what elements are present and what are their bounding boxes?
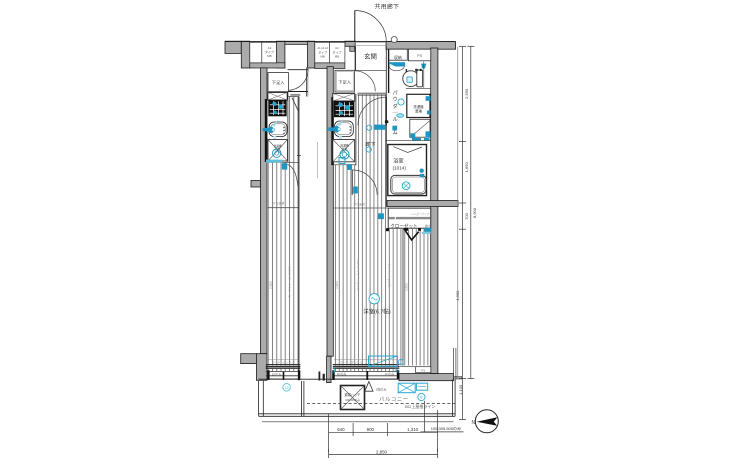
svg-text:2,600: 2,600 (269, 281, 273, 289)
svg-text:15: 15 (285, 386, 289, 390)
svg-text:バルコニー: バルコニー (379, 396, 409, 403)
svg-text:下り天井: 下り天井 (353, 202, 365, 207)
svg-text:502上屋根ライン: 502上屋根ライン (405, 403, 436, 409)
svg-text:1,650: 1,650 (464, 162, 469, 173)
svg-text:105,305,505のみ: 105,305,505のみ (431, 425, 461, 431)
svg-text:1Fのみ: 1Fのみ (385, 371, 395, 376)
svg-text:カーテンレール H2,000: カーテンレール H2,000 (355, 259, 360, 291)
svg-text:PS: PS (417, 54, 423, 58)
svg-text:1,310: 1,310 (407, 427, 419, 432)
svg-text:洗濯機: 洗濯機 (413, 104, 424, 109)
svg-text:玄関: 玄関 (364, 52, 377, 61)
svg-text:640: 640 (337, 427, 345, 432)
svg-text:扉付: 扉付 (425, 224, 431, 228)
svg-text:2,600: 2,600 (405, 283, 409, 291)
svg-text:105,305のみ: 105,305のみ (345, 398, 360, 402)
svg-text:MB: MB (267, 54, 272, 58)
svg-text:浴室: 浴室 (393, 156, 403, 164)
svg-text:N: N (471, 420, 475, 426)
svg-text:洋室(6.7帖): 洋室(6.7帖) (363, 308, 390, 316)
svg-text:カーテンレール H2,000: カーテンレール H2,000 (287, 266, 292, 298)
svg-text:2,550: 2,550 (464, 88, 469, 99)
svg-text:2,600: 2,600 (335, 281, 339, 289)
svg-text:カーテンボックス: カーテンボックス (340, 360, 362, 364)
svg-text:MB: MB (335, 55, 340, 59)
svg-text:900: 900 (367, 427, 375, 432)
svg-text:1階のみ: 1階のみ (376, 386, 387, 391)
svg-text:1Fのみ: 1Fのみ (272, 371, 282, 376)
svg-text:カーテンボックス: カーテンボックス (272, 360, 294, 364)
svg-text:PS: PS (421, 368, 425, 372)
svg-text:MB: MB (320, 55, 325, 59)
svg-text:廊下: 廊下 (365, 140, 375, 148)
svg-text:避難ハッチ: 避難ハッチ (345, 392, 361, 397)
svg-text:1,100: 1,100 (458, 384, 463, 395)
svg-text:(1014): (1014) (393, 166, 407, 171)
svg-text:クローゼット: クローゼット (390, 222, 418, 229)
svg-text:置場: 置場 (415, 109, 422, 114)
svg-text:下り天井: 下り天井 (272, 201, 284, 206)
svg-text:700: 700 (464, 212, 469, 219)
svg-text:1Fのみ: 1Fのみ (337, 371, 347, 376)
svg-text:8,900: 8,900 (472, 207, 477, 218)
svg-text:B: B (420, 396, 423, 400)
svg-text:2,850: 2,850 (376, 449, 388, 454)
svg-text:共用廊下: 共用廊下 (375, 3, 400, 11)
svg-text:洗濯機: 洗濯機 (274, 144, 282, 148)
svg-text:収納: 収納 (394, 54, 402, 60)
svg-text:ハンガーパイプ: ハンガーパイプ (411, 212, 430, 216)
svg-text:ピクチャーレール: ピクチャーレール (386, 263, 391, 287)
